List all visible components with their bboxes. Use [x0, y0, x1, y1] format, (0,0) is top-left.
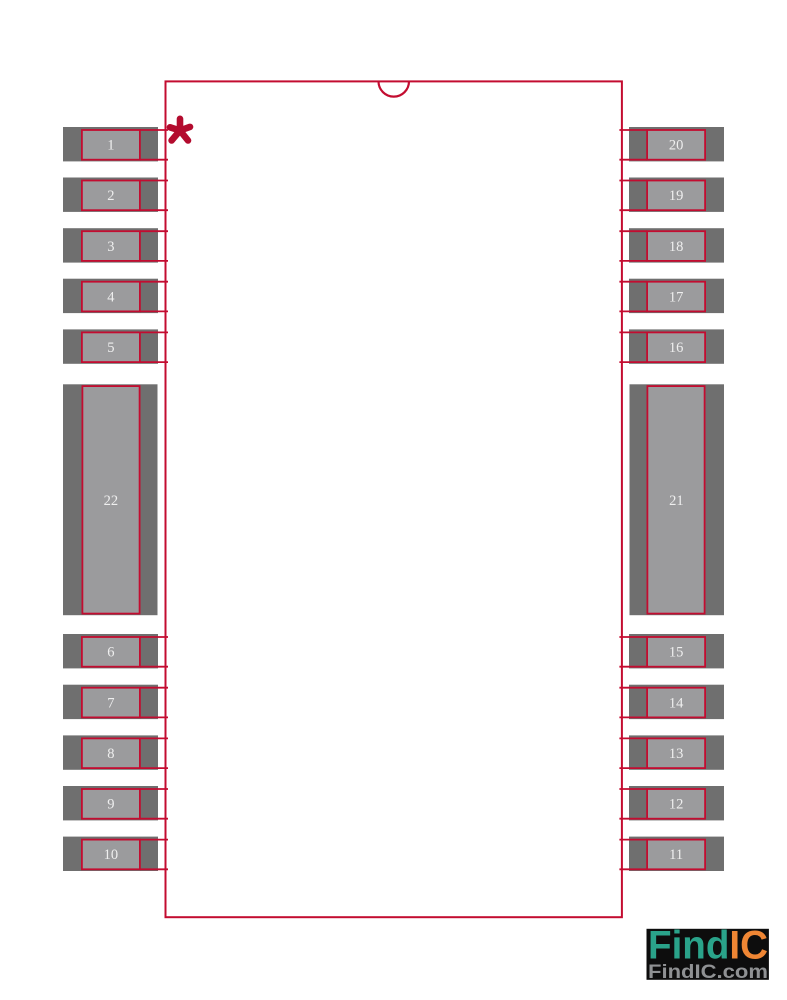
- svg-text:FindIC: FindIC: [648, 924, 768, 968]
- svg-text:5: 5: [107, 340, 114, 356]
- svg-text:20: 20: [669, 138, 684, 154]
- svg-text:9: 9: [107, 797, 114, 813]
- svg-text:11: 11: [669, 847, 683, 863]
- svg-text:12: 12: [669, 797, 684, 813]
- svg-text:1: 1: [107, 138, 114, 154]
- svg-text:FindIC.com: FindIC.com: [648, 962, 768, 983]
- svg-text:18: 18: [669, 239, 684, 255]
- svg-text:10: 10: [104, 847, 119, 863]
- svg-text:17: 17: [669, 289, 684, 305]
- svg-text:4: 4: [107, 289, 115, 305]
- svg-text:22: 22: [104, 493, 119, 509]
- svg-text:2: 2: [107, 188, 114, 204]
- svg-text:8: 8: [107, 746, 114, 762]
- svg-text:13: 13: [669, 746, 684, 762]
- svg-text:16: 16: [669, 340, 684, 356]
- svg-text:19: 19: [669, 188, 684, 204]
- svg-text:14: 14: [669, 695, 684, 711]
- svg-text:6: 6: [107, 645, 114, 661]
- svg-text:21: 21: [669, 493, 684, 509]
- svg-text:3: 3: [107, 239, 114, 255]
- svg-text:15: 15: [669, 645, 684, 661]
- svg-text:7: 7: [107, 695, 114, 711]
